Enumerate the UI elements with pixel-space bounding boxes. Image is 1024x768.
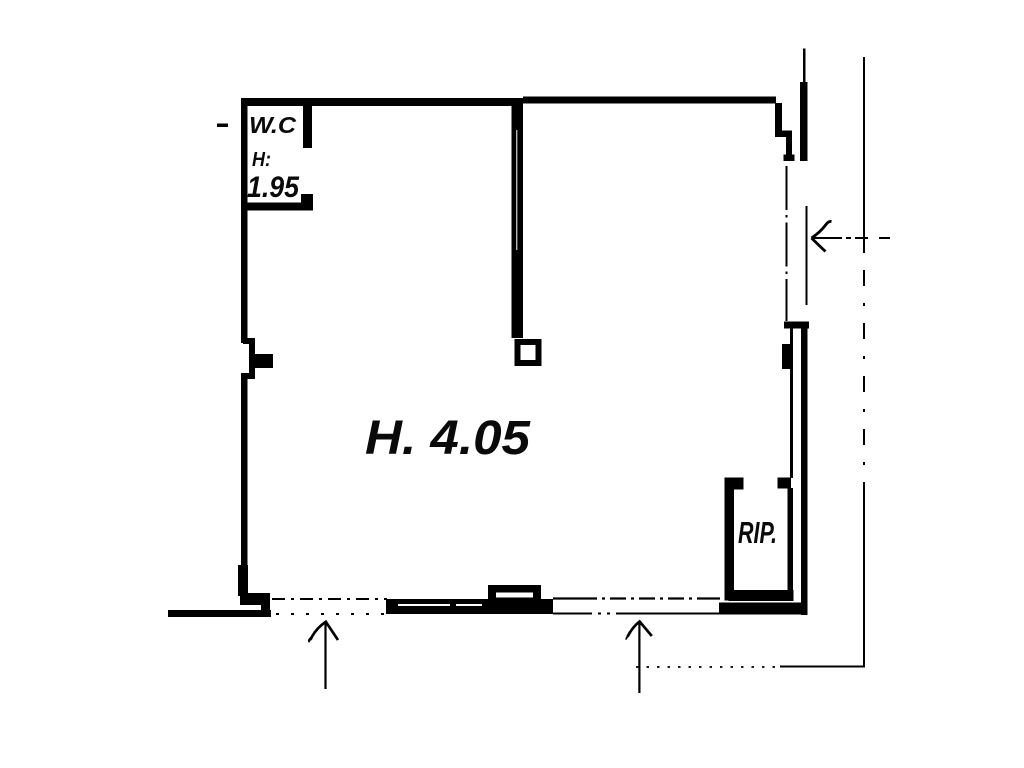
svg-text:RIP.: RIP.: [738, 515, 777, 550]
svg-text:1.95: 1.95: [247, 171, 300, 204]
svg-text:H:: H:: [252, 149, 271, 171]
svg-text:W.C: W.C: [249, 112, 296, 138]
svg-text:H. 4.05: H. 4.05: [365, 412, 531, 465]
